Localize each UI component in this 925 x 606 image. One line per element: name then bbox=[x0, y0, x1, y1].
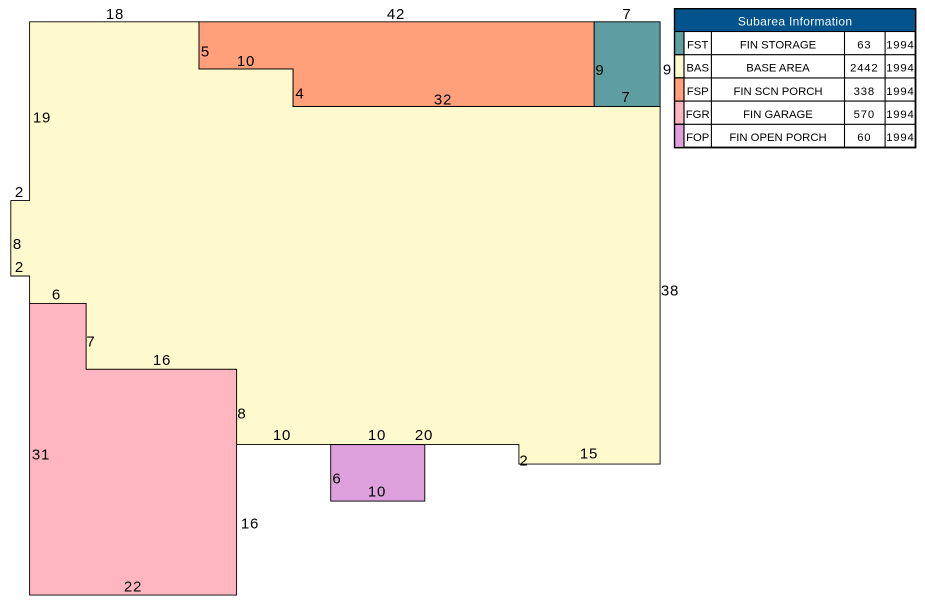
svg-text:7: 7 bbox=[621, 89, 630, 106]
svg-text:42: 42 bbox=[387, 6, 405, 23]
svg-text:7: 7 bbox=[86, 334, 95, 351]
svg-text:1994: 1994 bbox=[886, 132, 914, 144]
svg-text:FGR: FGR bbox=[686, 109, 710, 121]
svg-text:10: 10 bbox=[368, 427, 386, 444]
svg-text:1994: 1994 bbox=[886, 63, 914, 75]
svg-text:Subarea Information: Subarea Information bbox=[738, 15, 852, 29]
svg-text:8: 8 bbox=[237, 406, 246, 423]
svg-text:60: 60 bbox=[857, 132, 871, 144]
svg-text:2: 2 bbox=[15, 184, 24, 201]
svg-text:FOP: FOP bbox=[686, 132, 709, 144]
svg-text:2: 2 bbox=[519, 453, 528, 470]
svg-text:19: 19 bbox=[33, 110, 51, 127]
svg-text:FIN OPEN PORCH: FIN OPEN PORCH bbox=[729, 132, 826, 144]
svg-text:6: 6 bbox=[332, 471, 341, 488]
svg-text:FSP: FSP bbox=[687, 86, 709, 98]
svg-text:16: 16 bbox=[241, 516, 259, 533]
svg-text:22: 22 bbox=[124, 579, 142, 596]
svg-text:1994: 1994 bbox=[886, 109, 914, 121]
svg-text:32: 32 bbox=[434, 92, 452, 109]
svg-text:1994: 1994 bbox=[886, 39, 914, 51]
svg-text:FST: FST bbox=[687, 39, 708, 51]
svg-text:5: 5 bbox=[201, 44, 210, 61]
svg-text:6: 6 bbox=[52, 287, 61, 304]
svg-text:2: 2 bbox=[15, 259, 24, 276]
svg-text:1994: 1994 bbox=[886, 86, 914, 98]
svg-text:10: 10 bbox=[273, 427, 291, 444]
svg-text:10: 10 bbox=[368, 484, 386, 501]
svg-text:FIN GARAGE: FIN GARAGE bbox=[743, 109, 813, 121]
svg-text:BASE AREA: BASE AREA bbox=[746, 63, 810, 75]
svg-text:18: 18 bbox=[106, 6, 124, 23]
svg-text:15: 15 bbox=[580, 446, 598, 463]
svg-text:338: 338 bbox=[854, 86, 875, 98]
svg-text:BAS: BAS bbox=[686, 63, 709, 75]
svg-text:8: 8 bbox=[13, 236, 22, 253]
svg-text:63: 63 bbox=[857, 39, 871, 51]
svg-text:FIN SCN PORCH: FIN SCN PORCH bbox=[733, 86, 822, 98]
svg-text:20: 20 bbox=[415, 427, 433, 444]
svg-text:9: 9 bbox=[595, 62, 604, 79]
svg-text:31: 31 bbox=[32, 447, 50, 464]
svg-text:38: 38 bbox=[661, 283, 679, 300]
svg-text:9: 9 bbox=[663, 62, 672, 79]
svg-text:7: 7 bbox=[622, 6, 631, 23]
svg-text:FIN STORAGE: FIN STORAGE bbox=[740, 39, 817, 51]
svg-text:4: 4 bbox=[295, 86, 304, 103]
svg-text:16: 16 bbox=[153, 352, 171, 369]
svg-text:10: 10 bbox=[237, 53, 255, 70]
svg-text:2442: 2442 bbox=[850, 63, 878, 75]
svg-text:570: 570 bbox=[854, 109, 875, 121]
